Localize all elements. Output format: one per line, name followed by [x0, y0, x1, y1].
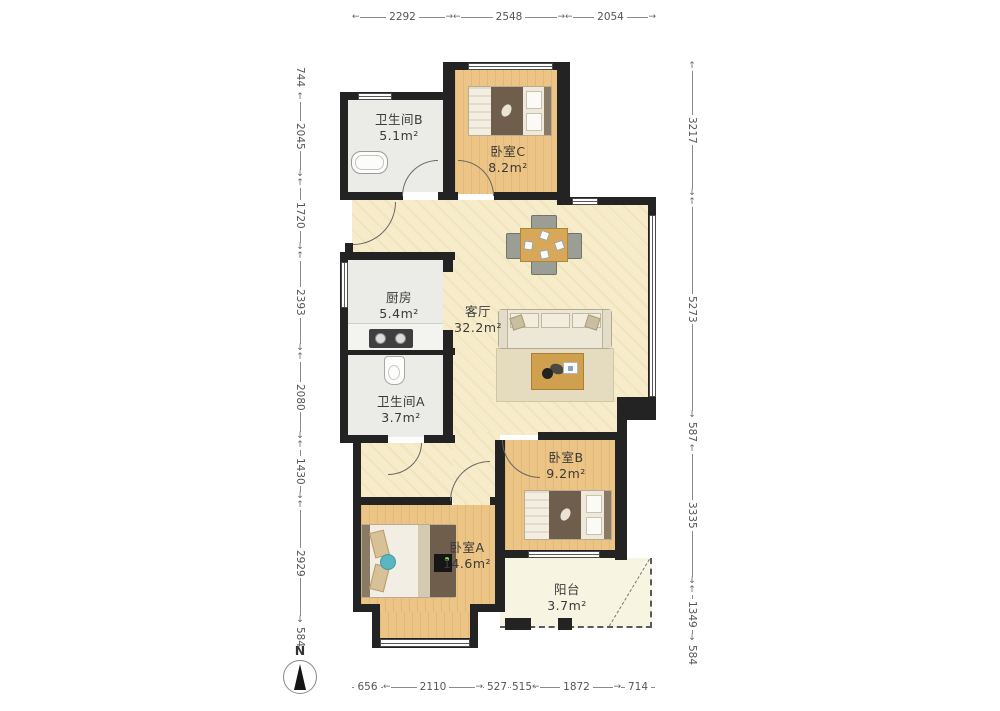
compass-north-label: N	[281, 643, 319, 658]
arrow-left-icon: ←	[352, 13, 360, 22]
dim-bottom-1: ←2110→	[383, 680, 483, 694]
place-setting	[539, 230, 550, 241]
burner	[375, 333, 386, 344]
bed-headboard	[544, 87, 551, 135]
wall	[353, 497, 452, 505]
toilet	[384, 356, 405, 385]
bed-pillow	[526, 113, 542, 131]
floor-bedroom-a	[380, 612, 470, 640]
bed-pillow	[526, 91, 542, 109]
dining-chair	[506, 233, 521, 259]
wall	[615, 440, 627, 560]
arrow-up-icon: ↑	[688, 62, 696, 71]
dim-right-0: ↑3217↓	[684, 62, 700, 198]
sofa-cushion	[541, 313, 570, 328]
bed	[468, 86, 552, 136]
arrow-up-icon: ↑	[688, 198, 696, 207]
room-area: 3.7m²	[519, 598, 615, 614]
dim-right-5: 584	[684, 643, 700, 668]
wall	[443, 330, 453, 443]
arrow-right-icon: →	[648, 13, 656, 22]
dim-right-1: ↑5273↓	[684, 198, 700, 420]
dim-left-6: ↑2929↓	[292, 501, 308, 625]
burner	[395, 333, 406, 344]
bed-headboard	[604, 491, 611, 539]
bed-pillow	[586, 517, 602, 535]
room-area: 8.2m²	[460, 160, 556, 176]
arrow-up-icon: ↑	[296, 353, 304, 362]
room-area: 5.1m²	[351, 128, 447, 144]
balcony-wall-stub	[558, 618, 572, 630]
coffee-table	[531, 353, 584, 390]
arrow-right-icon: →	[613, 683, 621, 692]
room-area: 14.6m²	[419, 556, 515, 572]
room-name: 卧室B	[518, 450, 614, 466]
compass-circle-icon	[283, 660, 317, 694]
arrow-up-icon: ↑	[688, 586, 696, 595]
dim-right-2: 587	[684, 420, 700, 445]
bathtub-inner	[355, 155, 384, 170]
dim-left-3: ↑2393↓	[292, 252, 308, 353]
arrow-down-icon: ↓	[688, 411, 696, 420]
arrow-up-icon: ↑	[296, 93, 304, 102]
sofa-pillow	[584, 314, 600, 330]
dim-right-3: ↑3335↓	[684, 445, 700, 586]
round-pillow	[380, 554, 396, 570]
arrow-right-icon: →	[475, 683, 483, 692]
place-setting	[539, 249, 550, 260]
wall	[438, 192, 458, 200]
wall	[490, 497, 505, 505]
dining-chair	[567, 233, 582, 259]
arrow-up-icon: ↑	[296, 179, 304, 188]
room-area: 3.7m²	[353, 410, 449, 426]
arrow-left-icon: ←	[383, 683, 391, 692]
wall	[424, 435, 455, 443]
bed	[524, 490, 612, 540]
sofa-arm	[602, 310, 611, 348]
wall	[353, 604, 380, 612]
wall	[340, 252, 455, 260]
room-name: 卧室C	[460, 144, 556, 160]
room-name: 卫生间A	[353, 394, 449, 410]
arrow-up-icon: ↑	[296, 252, 304, 261]
window	[468, 63, 553, 70]
arrow-left-icon: ←	[453, 13, 461, 22]
dim-top-0: ←2292→	[352, 10, 453, 24]
dim-bottom-4: ←1872→	[532, 680, 621, 694]
wall	[340, 192, 403, 200]
room-label-bathroom-a: 卫生间A 3.7m²	[353, 394, 449, 426]
dining-table	[520, 228, 568, 262]
room-label-bedroom-a: 卧室A 14.6m²	[419, 540, 515, 572]
window	[649, 215, 656, 397]
place-setting	[523, 240, 533, 250]
window	[572, 198, 598, 205]
dim-left-0: 744	[292, 62, 308, 93]
wall	[557, 62, 570, 200]
wall	[538, 432, 627, 440]
room-area: 32.2m²	[430, 320, 526, 336]
dim-bottom-5: 714	[621, 680, 655, 694]
dim-right-4: ↑1349↓	[684, 586, 700, 643]
room-label-bedroom-b: 卧室B 9.2m²	[518, 450, 614, 482]
wall	[340, 92, 348, 200]
tray-item	[568, 366, 573, 371]
floor-plan: 卫生间B 5.1m² 卧室C 8.2m² 厨房 5.4m² 客厅 32.2m² …	[0, 0, 1000, 711]
stove	[369, 329, 413, 348]
arrow-right-icon: →	[557, 13, 565, 22]
balcony-wall-stub	[505, 618, 531, 630]
toilet-bowl	[388, 365, 400, 380]
dim-bottom-2: 527	[483, 680, 508, 694]
window	[341, 262, 348, 308]
arrow-up-icon: ↑	[296, 441, 304, 450]
bed-sheet	[469, 87, 491, 135]
north-arrow-icon	[294, 664, 306, 690]
place-setting	[554, 240, 566, 252]
wall	[353, 443, 361, 612]
dim-top-2: ←2054→	[565, 10, 656, 24]
dining-chair	[531, 215, 557, 229]
arrow-up-icon: ↑	[688, 445, 696, 454]
kettle	[542, 368, 553, 379]
bathtub	[351, 151, 388, 174]
bed-pillow	[586, 495, 602, 513]
arrow-up-icon: ↑	[296, 501, 304, 510]
window	[528, 551, 600, 558]
wall	[340, 435, 388, 443]
tray	[563, 362, 578, 374]
room-name: 卫生间B	[351, 112, 447, 128]
compass: N	[281, 643, 319, 701]
wall	[340, 352, 348, 443]
dim-bottom-0: 656	[352, 680, 383, 694]
bed-sheet	[525, 491, 549, 539]
arrow-left-icon: ←	[532, 683, 540, 692]
dim-left-1: ↑2045↓	[292, 93, 308, 179]
arrow-down-icon: ↓	[296, 616, 304, 625]
arrow-left-icon: ←	[565, 13, 573, 22]
dim-left-5: ↑1430↓	[292, 441, 308, 501]
arrow-down-icon: ↓	[688, 634, 696, 643]
room-label-living: 客厅 32.2m²	[430, 304, 526, 336]
room-name: 阳台	[519, 582, 615, 598]
room-label-bathroom-b: 卫生间B 5.1m²	[351, 112, 447, 144]
arrow-right-icon: →	[445, 13, 453, 22]
wall	[470, 604, 505, 612]
window	[358, 93, 392, 100]
bay-window	[380, 639, 470, 647]
room-area: 9.2m²	[518, 466, 614, 482]
dim-bottom-3: 515	[508, 680, 532, 694]
room-label-balcony: 阳台 3.7m²	[519, 582, 615, 614]
room-label-bedroom-c: 卧室C 8.2m²	[460, 144, 556, 176]
room-name: 卧室A	[419, 540, 515, 556]
room-name: 客厅	[430, 304, 526, 320]
dim-top-1: ←2548→	[453, 10, 565, 24]
dining-chair	[531, 261, 557, 275]
dim-left-2: ↑1720↓	[292, 179, 308, 252]
dim-left-4: ↑2080↓	[292, 353, 308, 441]
wall	[443, 252, 453, 272]
